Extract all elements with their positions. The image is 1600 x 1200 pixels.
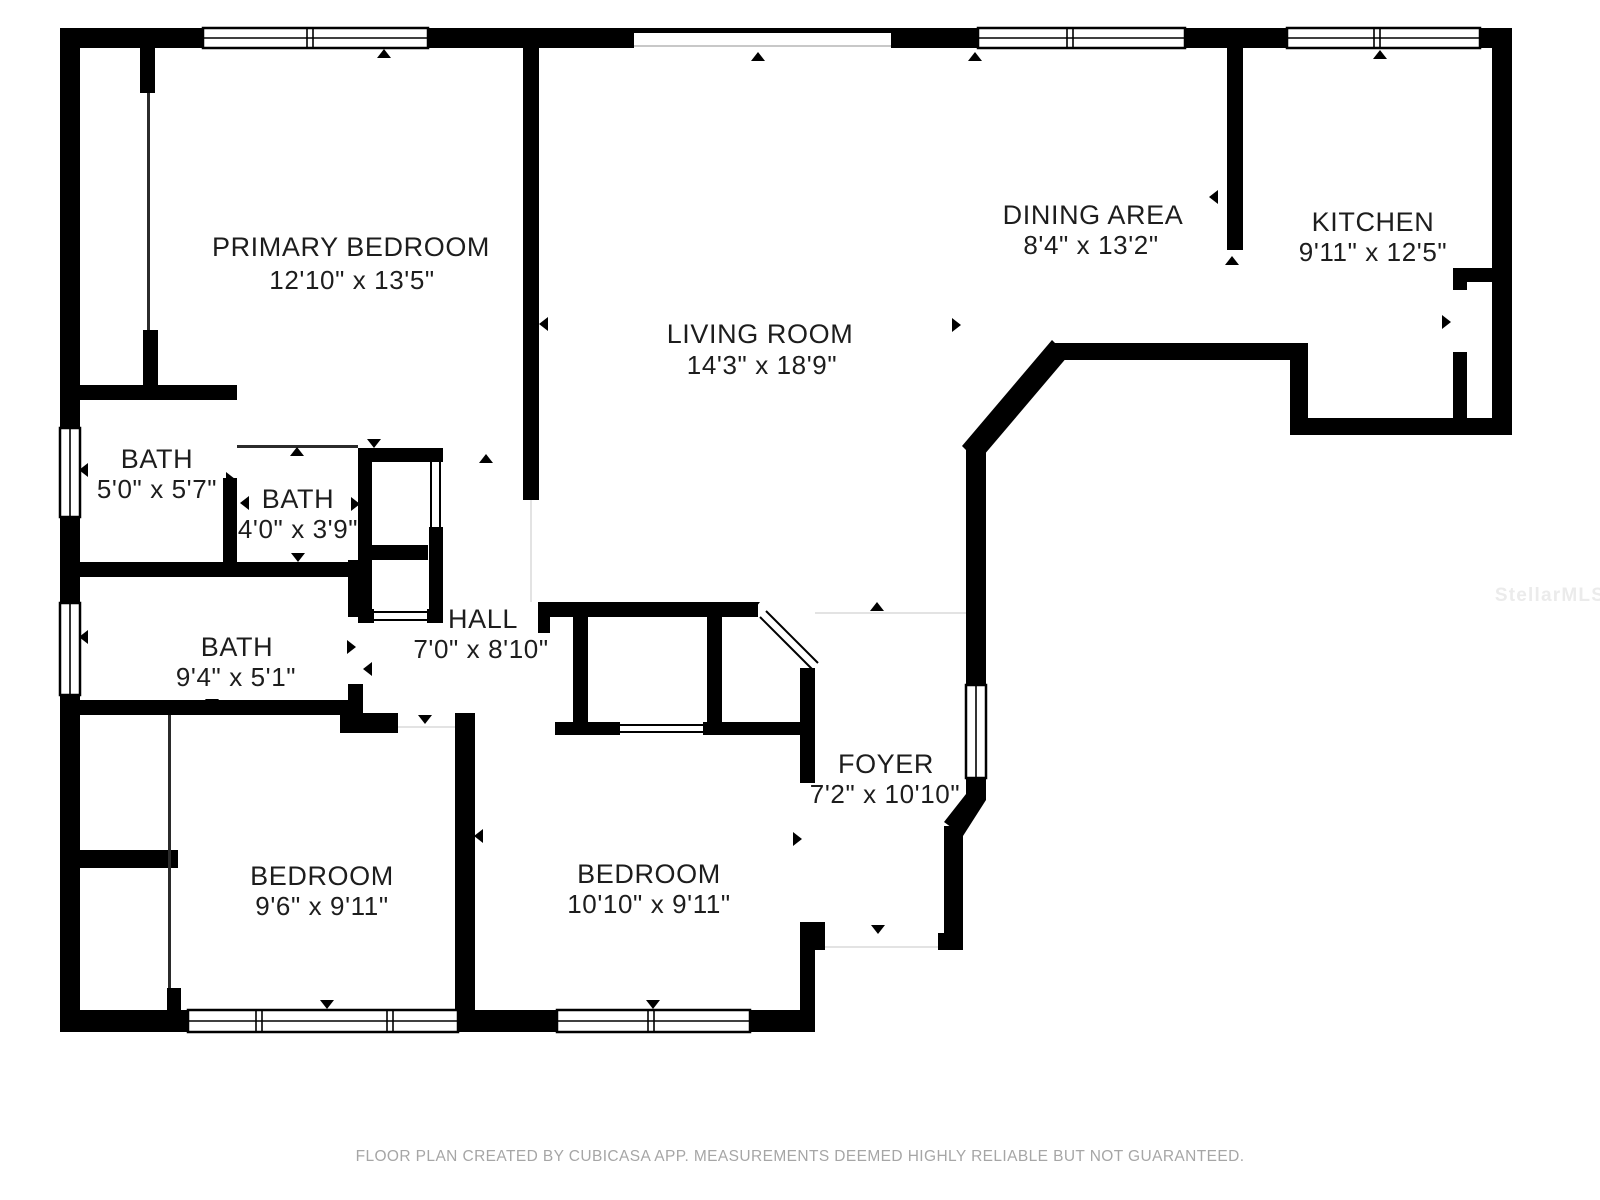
room-label-bath-3: BATH 9'4" x 5'1"	[176, 632, 296, 692]
room-dims: 9'6" x 9'11"	[255, 891, 388, 921]
door-marker-icon	[1373, 50, 1387, 59]
door-marker-icon	[1209, 190, 1218, 204]
room-dims: 8'4" x 13'2"	[1023, 230, 1158, 260]
window	[188, 1010, 458, 1032]
room-dims: 7'0" x 8'10"	[413, 634, 548, 664]
room-name: KITCHEN	[1312, 207, 1435, 237]
room-dims: 14'3" x 18'9"	[687, 350, 837, 380]
room-name: FOYER	[838, 749, 934, 779]
door-marker-icon	[479, 454, 493, 463]
floor-plan-page: PRIMARY BEDROOM 12'10" x 13'5" LIVING RO…	[0, 0, 1600, 1200]
closet-door-lines	[374, 462, 703, 732]
floor-plan-canvas: PRIMARY BEDROOM 12'10" x 13'5" LIVING RO…	[0, 0, 1600, 1200]
door-marker-icon	[871, 925, 885, 934]
door-marker-icon	[968, 52, 982, 61]
room-label-bedroom-1: BEDROOM 9'6" x 9'11"	[250, 861, 394, 921]
door-marker-icon	[793, 832, 802, 846]
door-marker-icon	[347, 640, 356, 654]
room-name: LIVING ROOM	[667, 319, 854, 349]
room-label-bath-1: BATH 5'0" x 5'7"	[97, 444, 217, 504]
window	[557, 1010, 750, 1032]
door-marker-icon	[539, 317, 548, 331]
door-marker-icon	[1225, 256, 1239, 265]
room-name: BATH	[201, 632, 273, 662]
window	[1287, 28, 1480, 48]
room-name: BEDROOM	[577, 859, 721, 889]
room-dims: 10'10" x 9'11"	[567, 889, 731, 919]
door-marker-icon	[952, 318, 961, 332]
room-labels: PRIMARY BEDROOM 12'10" x 13'5" LIVING RO…	[97, 200, 1447, 921]
door-marker-icon	[418, 715, 432, 724]
door-marker-icon	[870, 602, 884, 611]
room-dims: 7'2" x 10'10"	[810, 779, 960, 809]
footer-disclaimer: FLOOR PLAN CREATED BY CUBICASA APP. MEAS…	[0, 1148, 1600, 1166]
room-dims: 9'11" x 12'5"	[1299, 237, 1447, 267]
door-marker-icon	[320, 1000, 334, 1009]
room-name: BATH	[262, 484, 334, 514]
door-marker-icon	[377, 49, 391, 58]
door-marker-icon	[646, 1000, 660, 1009]
window	[978, 28, 1185, 48]
room-name: DINING AREA	[1003, 200, 1184, 230]
door-swing	[760, 617, 812, 669]
door-marker-icon	[1442, 315, 1451, 329]
door-marker-icon	[474, 829, 483, 843]
door-swings	[760, 611, 818, 669]
room-label-foyer: FOYER 7'2" x 10'10"	[810, 749, 960, 809]
window	[60, 428, 80, 517]
door-marker-icon	[751, 52, 765, 61]
room-label-primary-bedroom: PRIMARY BEDROOM 12'10" x 13'5"	[212, 232, 490, 295]
room-dims: 12'10" x 13'5"	[269, 265, 434, 295]
room-name: BATH	[121, 444, 193, 474]
room-label-bedroom-2: BEDROOM 10'10" x 9'11"	[567, 859, 731, 919]
room-dims: 9'4" x 5'1"	[176, 662, 296, 692]
window	[966, 685, 986, 778]
room-label-bath-2: BATH 4'0" x 3'9"	[238, 484, 358, 544]
window	[203, 28, 428, 48]
wall-opening	[634, 28, 891, 48]
door-marker-icon	[240, 496, 249, 510]
door-marker-icon	[363, 662, 372, 676]
watermark: StellarMLS	[1495, 585, 1600, 606]
room-label-living-room: LIVING ROOM 14'3" x 18'9"	[667, 319, 854, 380]
room-dims: 5'0" x 5'7"	[97, 474, 217, 504]
door-swing	[766, 611, 818, 663]
room-name: HALL	[448, 604, 518, 634]
room-label-kitchen: KITCHEN 9'11" x 12'5"	[1299, 207, 1447, 267]
door-marker-icon	[290, 447, 304, 456]
room-name: PRIMARY BEDROOM	[212, 232, 490, 262]
door-marker-icon	[291, 553, 305, 562]
window	[60, 603, 80, 695]
door-marker-icon	[367, 439, 381, 448]
room-name: BEDROOM	[250, 861, 394, 891]
room-label-dining-area: DINING AREA 8'4" x 13'2"	[1003, 200, 1184, 260]
room-dims: 4'0" x 3'9"	[238, 514, 358, 544]
